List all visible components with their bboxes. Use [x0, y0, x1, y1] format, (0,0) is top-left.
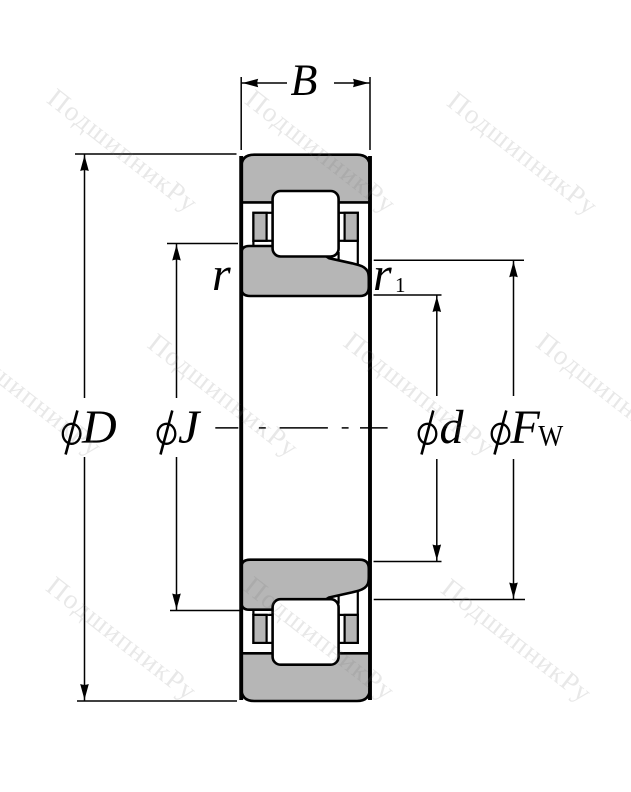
svg-text:r: r [212, 248, 231, 301]
svg-text:F: F [510, 401, 541, 454]
svg-text:ПодшипникРу: ПодшипникРу [42, 82, 205, 219]
svg-text:ПодшипникРу: ПодшипникРу [338, 325, 501, 462]
svg-text:B: B [291, 56, 318, 105]
svg-text:ПодшипникРу: ПодшипникРу [436, 572, 599, 709]
svg-text:ПодшипникРу: ПодшипникРу [442, 85, 605, 222]
svg-text:1: 1 [395, 273, 406, 297]
svg-text:r: r [373, 248, 392, 301]
svg-text:J: J [178, 401, 202, 454]
svg-text:ПодшипникРу: ПодшипникРу [0, 326, 109, 463]
svg-text:W: W [538, 420, 564, 453]
svg-text:ПодшипникРу: ПодшипникРу [41, 570, 204, 707]
